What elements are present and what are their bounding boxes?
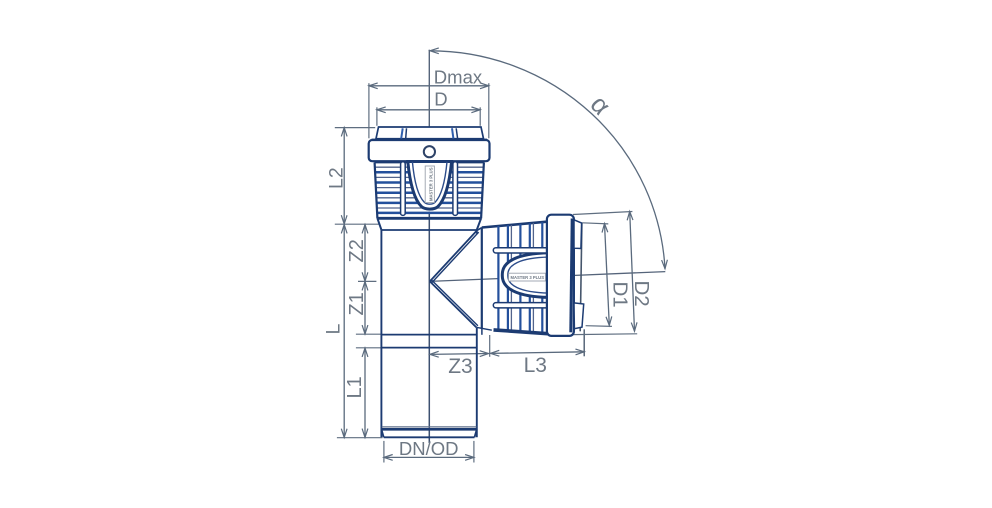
svg-text:L2: L2 [326,167,348,189]
svg-text:L: L [322,324,344,335]
svg-text:Dmax: Dmax [434,66,483,87]
svg-text:Z1: Z1 [346,292,368,315]
svg-text:DN/OD: DN/OD [399,438,459,459]
svg-text:D2: D2 [630,281,653,307]
svg-text:D1: D1 [609,282,632,308]
svg-text:L3: L3 [524,354,547,377]
svg-text:Z2: Z2 [346,239,368,262]
svg-text:L1: L1 [344,376,366,398]
svg-text:D: D [434,88,447,109]
svg-text:MASTER 3 PLUS: MASTER 3 PLUS [428,168,433,202]
svg-text:Z3: Z3 [448,355,473,378]
svg-text:MASTER 3 PLUS: MASTER 3 PLUS [511,275,545,280]
